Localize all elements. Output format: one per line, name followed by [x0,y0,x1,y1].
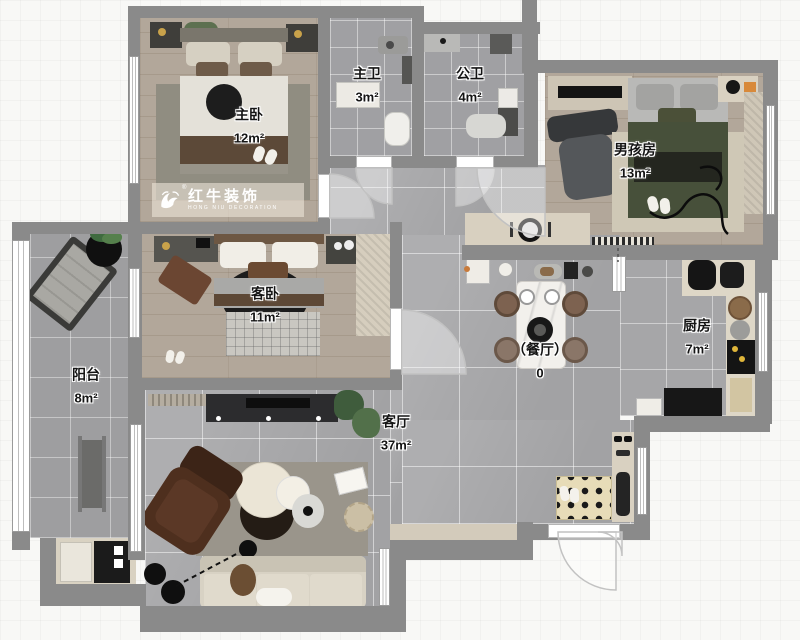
window [129,268,140,338]
pillow [636,84,674,110]
cabinet-knob [266,416,271,421]
wall [537,60,773,73]
room-area: 11m² [250,309,280,325]
dryer-window [114,546,123,555]
notebook[interactable] [744,82,756,92]
dining-chair[interactable] [494,291,520,317]
cutting-board[interactable] [728,296,752,320]
curtain-strip [148,394,206,406]
sofa[interactable] [200,554,366,612]
wall [12,532,30,550]
nightstand[interactable] [150,22,182,48]
vase [344,240,354,250]
rice-cooker[interactable] [688,260,716,290]
cooktop-knob [732,346,738,352]
wall [318,18,330,174]
sink[interactable] [498,88,518,108]
desk-lamp[interactable] [726,80,740,94]
dishwasher[interactable] [636,398,662,416]
wall [390,222,402,308]
master-bedroom-door [318,174,330,218]
wall [128,222,330,234]
guest-bedroom-door [390,308,402,370]
rack-panel [82,440,102,508]
room-label-dining: （餐厅） 0 [512,341,568,380]
public-bath-door [456,156,494,168]
toilet[interactable] [466,114,506,138]
shoes [614,436,622,442]
sideboard-handle [464,266,470,272]
wardrobe[interactable] [744,92,763,214]
dryer[interactable] [94,541,130,583]
hongniu-bull-logo-icon [158,188,182,212]
side-table-vase [303,506,313,516]
room-name: 主卧 [234,106,264,123]
floor-lamp-base[interactable] [161,580,185,604]
window [129,56,139,184]
place-setting-plate [518,218,542,242]
room-area: 8m² [72,390,100,406]
dining-chair[interactable] [562,291,588,317]
room-name: 阳台 [72,366,100,383]
vacuum-cleaner[interactable] [616,472,630,516]
cutlery-icon [548,222,551,237]
watermark-subtitle: HONG NIU DECORATION [188,206,278,211]
wall [524,34,538,165]
shower-head-icon [386,41,394,49]
table-lamp[interactable] [294,30,302,38]
floor-lamp-base[interactable] [144,563,166,585]
sofa-cushion [310,574,362,608]
vase [334,242,342,250]
throw-pillow-white [256,588,292,606]
room-area: 4m² [456,89,484,105]
room-area: 12m² [234,130,264,146]
room-label-master-bedroom: 主卧 12m² [234,106,264,145]
room-area: 13m² [614,165,656,181]
tray-bread [540,267,554,276]
wall [12,222,30,240]
coffee-machine[interactable] [564,262,578,279]
watermark-brand: 红牛装饰 [188,189,278,204]
washer[interactable] [60,542,92,582]
room-area: 7m² [683,341,711,357]
wall [28,222,128,234]
kitchen-door-frame [612,256,626,292]
sofa-back [200,556,366,572]
pouf[interactable] [344,502,374,532]
dresser-decor [196,238,210,248]
chair-seat [557,133,619,202]
entry-door-opening [548,524,620,538]
cabinet-knob [216,416,221,421]
small-appliance[interactable] [582,266,593,277]
wall [128,6,424,18]
room-area: 37m² [381,437,411,453]
tv[interactable] [246,398,310,408]
room-name: 客厅 [381,413,411,430]
room-label-balcony: 阳台 8m² [72,366,100,405]
cutlery-icon [510,222,513,237]
throw-pillow-brown [230,564,256,596]
bed-foot [180,164,288,174]
slippers[interactable] [659,198,670,215]
room-label-guest-bedroom: 客卧 11m² [250,285,280,324]
wall [517,522,533,560]
monitor[interactable] [558,86,622,98]
wardrobe[interactable] [356,234,390,336]
wall [40,584,146,606]
rack-post [102,436,106,512]
wall [412,6,424,156]
room-name: 主卫 [353,65,381,82]
window [758,292,768,372]
wall [634,416,770,432]
room-label-boys-room: 男孩房 13m² [614,141,656,180]
nightstand[interactable] [286,24,318,52]
cabinet-knob [316,416,321,421]
room-label-public-bath: 公卫 4m² [456,65,484,104]
prep-tray[interactable] [730,378,752,412]
pot[interactable] [730,320,750,340]
room-name: 公卫 [456,65,484,82]
balcony-window [12,240,30,532]
room-name: （餐厅） [512,341,568,358]
wall [128,378,402,390]
window [379,548,390,606]
bath-shelf[interactable] [402,56,412,84]
shoes [624,436,632,442]
cooktop-knob [739,356,745,362]
master-bath-door [356,156,392,168]
wall [494,156,538,168]
floor-plan-canvas: 主卧 12m² 主卫 3m² 公卫 4m² 男孩房 13m² 客卧 11m² 厨… [0,0,800,640]
room-area: 0 [512,365,568,381]
room-name: 男孩房 [614,141,656,158]
room-label-master-bath: 主卫 3m² [353,65,381,104]
dryer-window [114,559,123,568]
window [637,447,647,515]
kitchen-island-counter[interactable] [664,388,722,416]
wall [140,606,406,632]
room-label-living-room: 客厅 37m² [381,413,411,452]
shower-head-icon [440,38,446,44]
wall [318,156,356,168]
balcony-slider-window [130,424,142,552]
room-label-kitchen: 厨房 7m² [683,317,711,356]
toilet[interactable] [384,112,410,146]
pillow [680,84,718,110]
registered-mark: ® [182,185,186,191]
headboard [180,28,288,42]
plant[interactable] [352,408,380,438]
shoes [616,450,630,456]
wall [390,370,402,390]
room-name: 厨房 [683,317,711,334]
kettle[interactable] [720,262,744,288]
room-area: 3m² [353,89,381,105]
wall [392,156,456,168]
plate [544,289,560,305]
jar[interactable] [498,262,513,277]
table-lamp[interactable] [158,28,166,36]
room-name: 客卧 [250,285,280,302]
drying-rack[interactable] [78,430,106,518]
watermark: ® 红牛装饰 HONG NIU DECORATION [152,183,304,217]
window [766,105,775,215]
door-arc [558,532,616,590]
wall [40,538,56,590]
centerpiece-inner [534,324,546,336]
wall [390,540,533,560]
sideboard-fridge[interactable] [466,258,490,284]
slippers[interactable] [570,488,580,503]
table-lamp[interactable] [162,242,170,250]
plate [519,289,535,305]
